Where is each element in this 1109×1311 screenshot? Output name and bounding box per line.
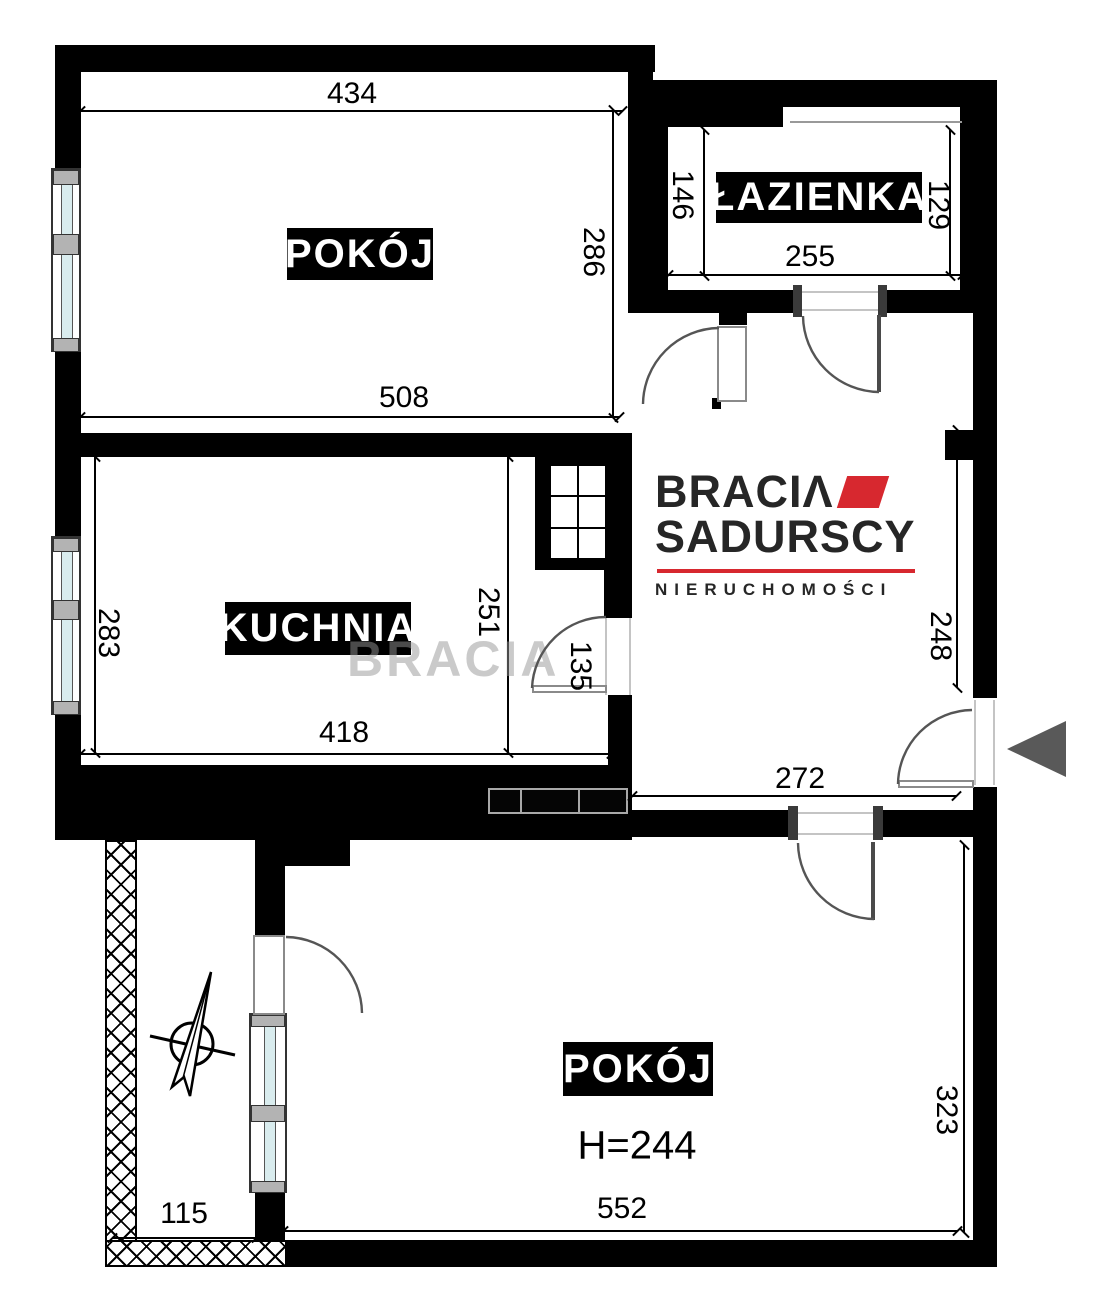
door-top-room-jamb — [719, 313, 747, 325]
dim-room-top-width-bottom: 508 — [379, 381, 429, 415]
logo-line1: BRACIΛ — [655, 470, 834, 514]
ventilation-grid-icon — [549, 464, 607, 560]
door-swing-top-room — [643, 328, 719, 404]
window-kitchen — [51, 536, 81, 715]
bottom-room-door-jamb-right — [873, 806, 883, 840]
wall-hall-bottom-left — [632, 810, 798, 837]
wall-balcony-door-side — [255, 865, 285, 937]
window-balcony — [249, 1013, 287, 1193]
bottom-room-door-leaf — [871, 842, 875, 920]
room-label-lazienka: ŁAZIENKA — [716, 172, 922, 223]
bathroom-door-jamb-left — [793, 285, 802, 317]
wall-hall-top — [628, 290, 793, 313]
logo-rule — [657, 569, 915, 573]
dim-room-top-width-top: 434 — [327, 77, 377, 111]
door-swing-bathroom — [803, 316, 879, 392]
door-swing-bottom-room — [798, 843, 874, 919]
wall-room-kitchen-divider — [55, 433, 632, 457]
wall-hall-right-pier — [945, 430, 973, 460]
watermark-text: BRACIA — [347, 630, 559, 688]
bottom-room-door-jamb-left — [788, 806, 798, 840]
bathroom-door-jamb-right — [878, 285, 887, 317]
wall-bottom-exterior — [280, 1240, 997, 1267]
dim-room-bottom-width-bottom: 552 — [597, 1192, 647, 1226]
dim-hall-width-bottom: 272 — [775, 762, 825, 796]
wall-bathroom-bottom-right — [887, 290, 973, 313]
kitchen-counter — [488, 788, 628, 814]
dim-kitchen-door: 135 — [563, 641, 597, 691]
north-arrow-icon — [150, 972, 235, 1096]
dim-hall-height-right: 248 — [923, 611, 957, 661]
dim-room-bottom-height-right: 323 — [929, 1085, 963, 1135]
room-label-pokoj-top: POKÓJ — [287, 228, 433, 280]
wall-room-top-right — [628, 72, 653, 313]
wall-bathroom-top-thick — [653, 80, 783, 127]
ceiling-height-note: H=244 — [578, 1124, 697, 1169]
wall-balcony-door-top — [255, 840, 350, 866]
wall-bathroom-top-thin — [783, 80, 997, 107]
wall-hall-bottom-right — [883, 810, 973, 837]
wall-left-kitchen-upper — [55, 457, 81, 536]
door-swing-entrance — [898, 710, 972, 784]
dim-kitchen-height-left: 283 — [91, 608, 125, 658]
dim-bathroom-width-bottom: 255 — [785, 240, 835, 274]
entrance-door-leaf — [898, 780, 974, 788]
entrance-arrow-icon — [1007, 721, 1066, 777]
wall-left-upper — [55, 45, 81, 173]
bathroom-door-leaf — [877, 315, 881, 392]
logo-mark-icon — [836, 476, 888, 508]
wall-bathroom-right — [960, 107, 973, 290]
logo-line3: NIERUCHOMOŚCI — [655, 580, 947, 600]
agency-logo: BRACIΛ SADURSCY NIERUCHOMOŚCI — [655, 470, 947, 600]
room-label-pokoj-bottom: POKÓJ — [563, 1042, 713, 1096]
dim-balcony-width: 115 — [160, 1197, 208, 1231]
dim-room-top-height-right: 286 — [576, 227, 610, 277]
logo-line2: SADURSCY — [655, 514, 947, 560]
balcony-wall-bottom — [105, 1240, 287, 1267]
balcony-wall-left — [105, 840, 137, 1267]
dim-kitchen-width-bottom: 418 — [319, 716, 369, 750]
floor-plan: 434 286 508 283 251 418 135 146 129 255 … — [0, 0, 1109, 1311]
wall-top — [55, 45, 655, 72]
wall-right-exterior — [973, 80, 997, 1267]
door-swing-balcony — [286, 937, 362, 1013]
dim-bathroom-height-left: 146 — [665, 170, 699, 220]
top-room-door-leaf — [717, 326, 747, 402]
balcony-door-leaf — [253, 935, 285, 1015]
window-room-top — [51, 168, 81, 352]
